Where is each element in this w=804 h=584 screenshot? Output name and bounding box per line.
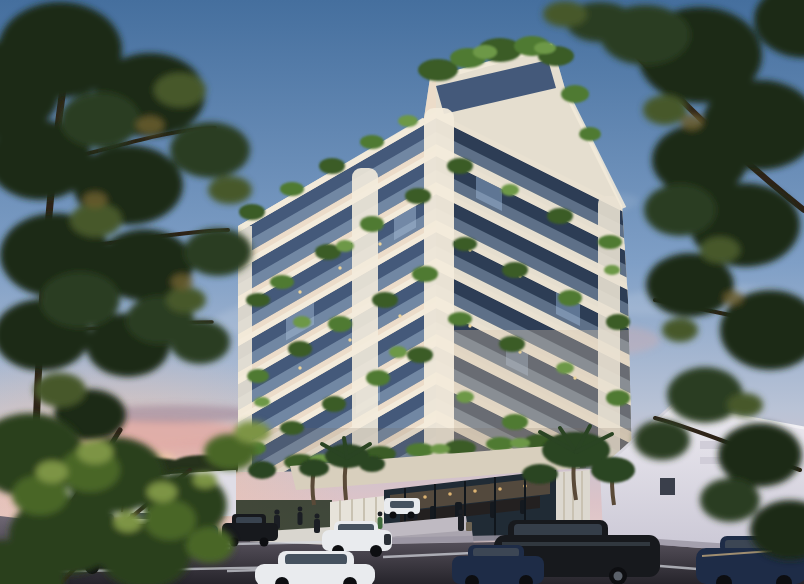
- person-green-shirt: [378, 512, 383, 529]
- small-window: [660, 478, 675, 495]
- render-canvas: [0, 0, 804, 584]
- left-pier: [352, 168, 378, 468]
- architectural-render: [0, 0, 804, 584]
- person: [298, 507, 303, 525]
- person: [314, 514, 320, 534]
